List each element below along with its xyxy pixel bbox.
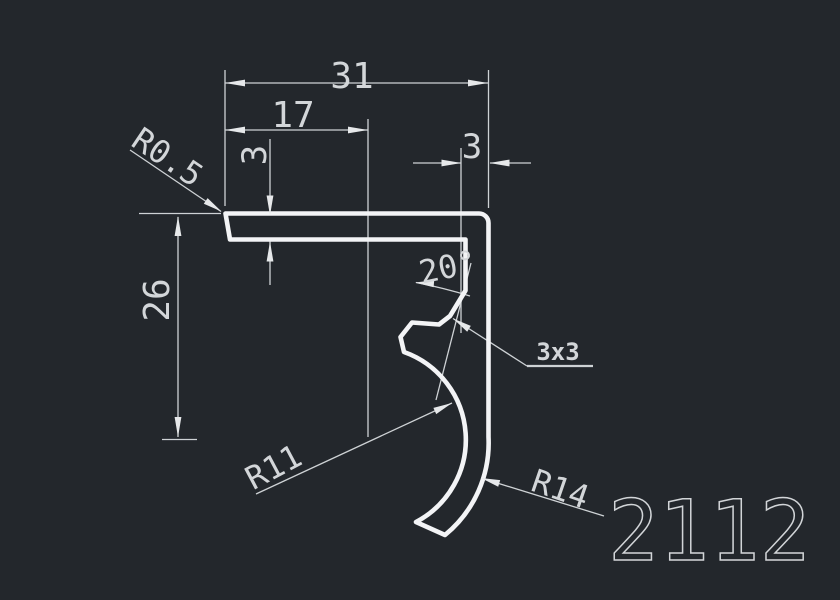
note-label-3x3: 3x3 — [536, 338, 579, 366]
dimension-labels: 31 17 3 3 26 20° 3x3 R0.5 R11 R14 — [125, 56, 594, 516]
dim-label-3-top: 3 — [235, 145, 275, 165]
arrowhead-3-top-up — [267, 242, 274, 262]
radius-label-r05: R0.5 — [125, 120, 210, 195]
arrowhead-26-top — [175, 216, 182, 236]
cad-model-space[interactable]: 31 17 3 3 26 20° 3x3 R0.5 R11 R14 2112 — [0, 0, 840, 600]
arrowhead-r11 — [433, 403, 452, 414]
dim-label-20deg: 20° — [416, 242, 480, 291]
arrowhead-r05 — [204, 198, 222, 211]
drawing-canvas: 31 17 3 3 26 20° 3x3 R0.5 R11 R14 2112 — [0, 0, 840, 600]
radius-label-r11: R11 — [239, 437, 308, 498]
arrowhead-3-right-in-right — [490, 160, 510, 167]
arrowhead-17-right — [348, 127, 368, 134]
arrowhead-26-bottom — [175, 417, 182, 437]
arrowhead-31-right — [468, 80, 488, 87]
arrowhead-31-left — [225, 80, 245, 87]
radius-label-r14: R14 — [527, 462, 594, 517]
arrowhead-17-left — [225, 127, 245, 134]
part-number-label: 2112 — [608, 482, 810, 580]
dimension-lines — [130, 70, 604, 516]
arrowhead-3-right-in-left — [442, 160, 462, 167]
dim-label-17: 17 — [271, 95, 314, 136]
dim-label-26: 26 — [137, 278, 178, 321]
dim-label-31: 31 — [330, 56, 373, 97]
dim-label-3-right: 3 — [462, 127, 482, 167]
